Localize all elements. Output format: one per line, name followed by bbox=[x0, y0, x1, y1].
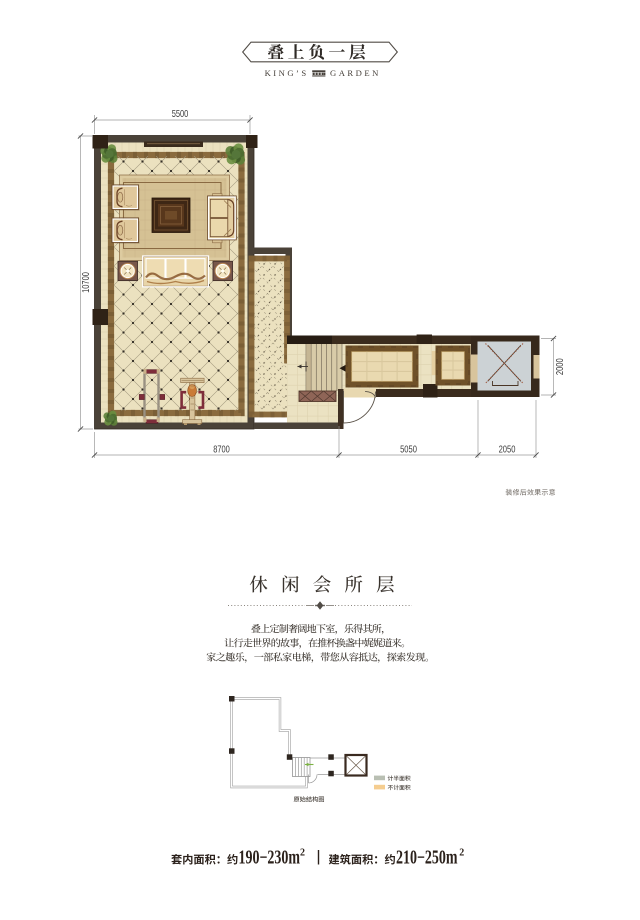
svg-text:2000: 2000 bbox=[555, 358, 566, 375]
svg-text:8700: 8700 bbox=[213, 445, 230, 456]
svg-text:210−250m: 210−250m bbox=[396, 848, 458, 869]
svg-text:10700: 10700 bbox=[81, 272, 92, 293]
svg-text:2: 2 bbox=[459, 848, 464, 859]
svg-text:GARDEN: GARDEN bbox=[330, 68, 381, 78]
svg-text:2050: 2050 bbox=[499, 445, 516, 456]
svg-text:KING’S: KING’S bbox=[265, 68, 309, 78]
svg-text:190−230m: 190−230m bbox=[239, 848, 301, 869]
svg-text:5500: 5500 bbox=[172, 109, 189, 120]
svg-text:5050: 5050 bbox=[400, 445, 417, 456]
svg-text:2: 2 bbox=[300, 848, 305, 859]
